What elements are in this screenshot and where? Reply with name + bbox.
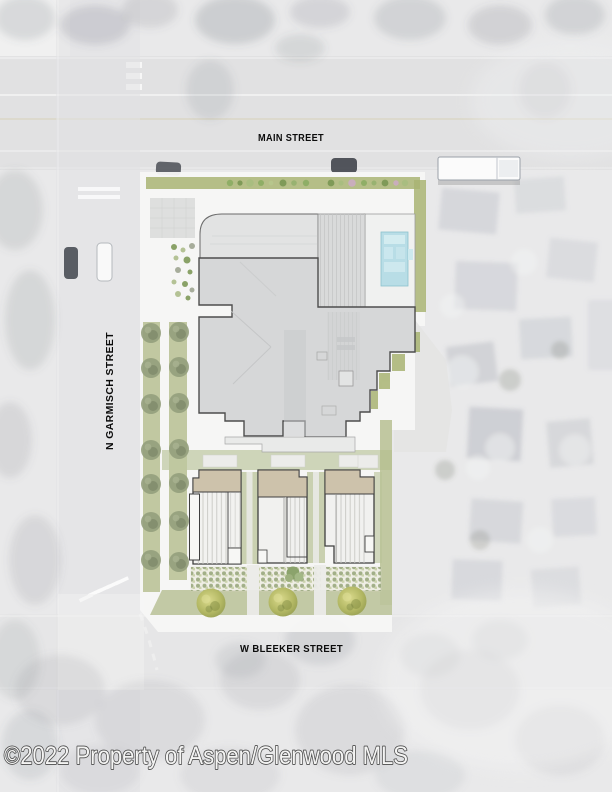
car-on-garmisch <box>64 247 78 279</box>
street-label-main: MAIN STREET <box>258 133 324 144</box>
watermark-text: ©2022 Property of Aspen/Glenwood MLS <box>4 742 408 770</box>
townhouse-1-roof-deck <box>193 470 241 492</box>
hatched-roof-deck <box>318 214 365 307</box>
street-label-garmisch: N GARMISCH STREET <box>105 332 116 450</box>
townhouse-1 <box>190 470 242 564</box>
planting-strip-right <box>414 180 426 312</box>
townhouse-2 <box>258 470 307 563</box>
truck-on-main <box>438 157 520 185</box>
walkway-vertical-2 <box>314 565 326 615</box>
walkway-pads <box>203 455 378 468</box>
screenshot-root: MAIN STREET N GARMISCH STREET W BLEEKER … <box>0 0 612 792</box>
van-on-garmisch <box>97 243 112 281</box>
street-label-bleeker: W BLEEKER STREET <box>240 644 343 655</box>
paver-court <box>150 198 195 238</box>
walkway-vertical-1 <box>247 565 259 615</box>
car-on-main-2 <box>331 158 357 173</box>
site-plan-map: MAIN STREET N GARMISCH STREET W BLEEKER … <box>0 0 612 792</box>
